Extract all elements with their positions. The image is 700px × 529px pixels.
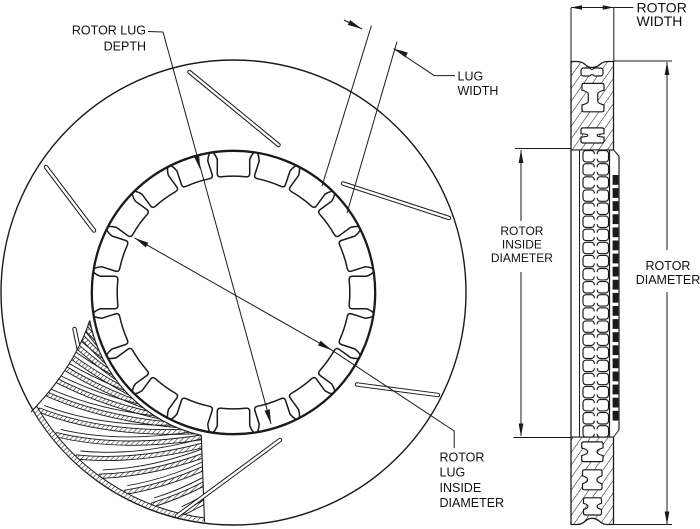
svg-text:ROTOR: ROTOR (646, 259, 691, 273)
svg-text:ROTOR: ROTOR (500, 224, 543, 238)
svg-text:WIDTH: WIDTH (637, 13, 683, 29)
svg-text:DIAMETER: DIAMETER (491, 251, 553, 265)
svg-text:ROTOR: ROTOR (440, 451, 485, 465)
svg-text:DIAMETER: DIAMETER (440, 496, 505, 510)
svg-text:LUG: LUG (440, 466, 466, 480)
svg-text:DEPTH: DEPTH (104, 40, 146, 54)
svg-text:INSIDE: INSIDE (440, 481, 482, 495)
svg-text:WIDTH: WIDTH (458, 84, 499, 98)
svg-text:ROTOR LUG: ROTOR LUG (72, 24, 146, 38)
svg-text:LUG: LUG (458, 70, 484, 84)
svg-text:DIAMETER: DIAMETER (636, 273, 700, 287)
svg-text:INSIDE: INSIDE (502, 238, 542, 252)
